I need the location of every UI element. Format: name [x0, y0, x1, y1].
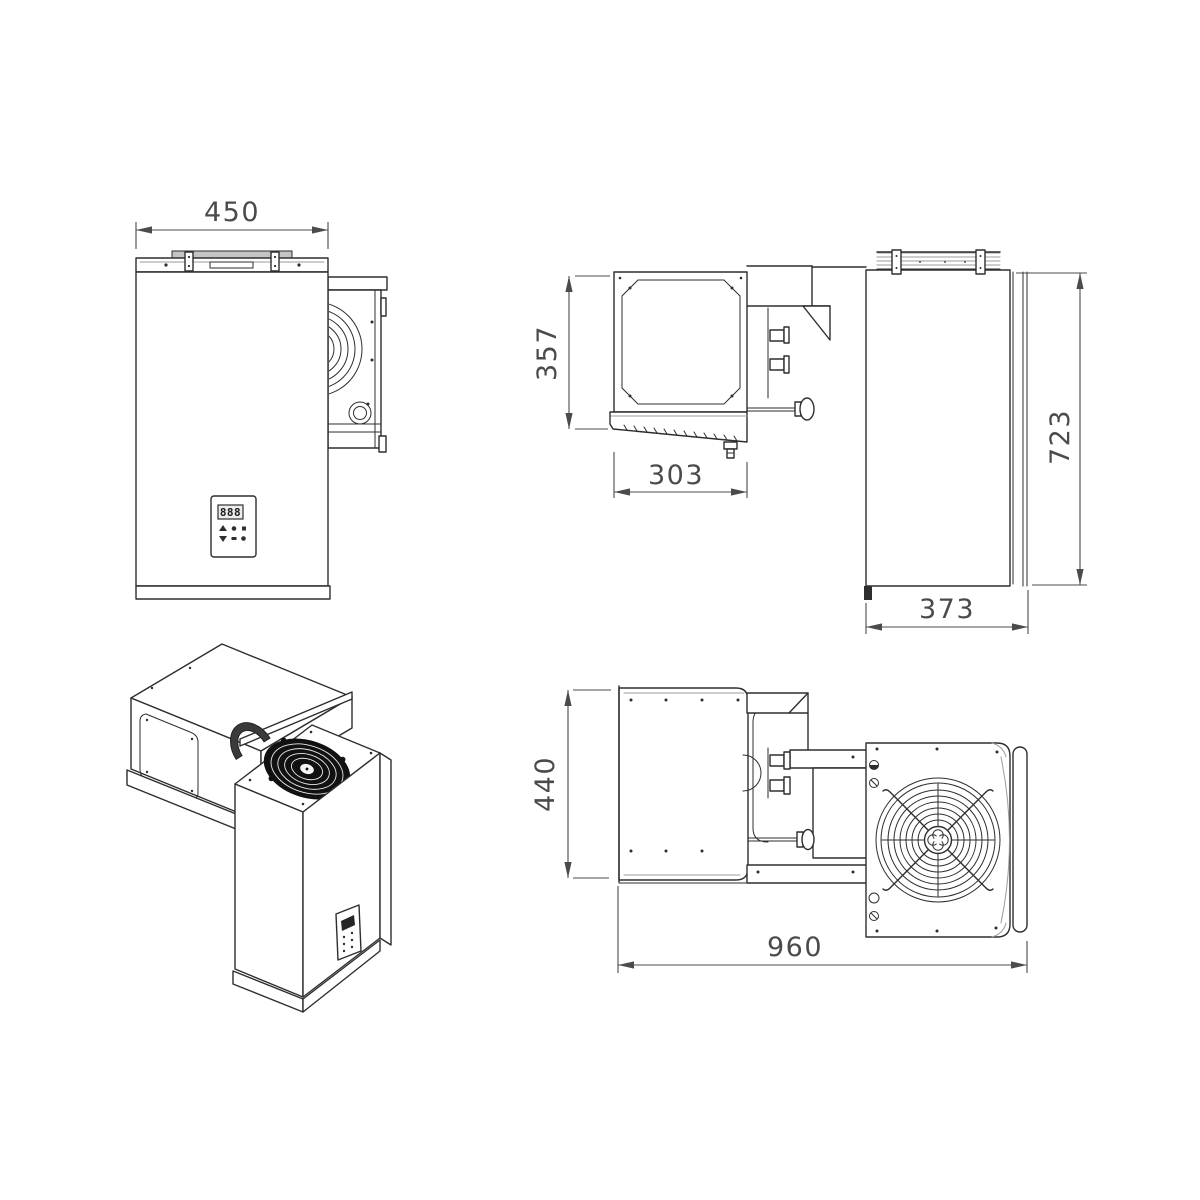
- dim-evaporator-depth: 303: [614, 452, 747, 498]
- screw-dot: [164, 263, 167, 266]
- condenser-side: [864, 250, 1027, 600]
- set-button: [232, 526, 237, 531]
- display-digits: 888: [220, 506, 241, 519]
- rail-clamp-left: [185, 252, 193, 271]
- dim-label-top-depth: 440: [530, 756, 561, 812]
- unit-foot: [864, 586, 872, 600]
- fan-hub-top: [925, 827, 952, 854]
- side-view: 357 303 723 373: [532, 250, 1087, 634]
- drawing-sheet: 450: [0, 0, 1200, 1200]
- screw-dot: [297, 263, 300, 266]
- condenser-rear-block: [813, 768, 867, 858]
- wall-bracket-side: [747, 266, 866, 340]
- control-panel-iso: [336, 905, 361, 960]
- dim-label-evap-depth: 303: [648, 460, 704, 491]
- valve-rod-side: [747, 398, 814, 420]
- cabinet-bottom-band: [136, 586, 330, 599]
- rail-clamp-right: [271, 252, 279, 271]
- power-button: [241, 536, 246, 541]
- dim-label-overall-length: 960: [767, 932, 823, 963]
- grille-clamp: [892, 250, 901, 274]
- isometric-view: [127, 644, 391, 1012]
- dim-label-evap-height: 357: [532, 325, 563, 381]
- dim-front-width: 450: [136, 197, 328, 249]
- dim-top-depth: 440: [530, 690, 611, 878]
- control-panel: 888: [211, 496, 256, 557]
- dim-label-front-width: 450: [204, 197, 260, 228]
- top-view: 440 960: [530, 686, 1027, 973]
- grille-clamp: [976, 250, 985, 274]
- evaporator-top: [619, 686, 768, 882]
- valve-knob-top: [802, 830, 814, 850]
- pipe-connections-top: [768, 748, 790, 798]
- valve-knob: [800, 398, 814, 420]
- condenser-iso: [233, 725, 391, 1012]
- mounting-rail-front: [136, 251, 328, 272]
- fan-guard: [876, 778, 1000, 902]
- evaporator-side: [610, 272, 814, 458]
- dim-evaporator-height: 357: [532, 276, 610, 429]
- pipe-connections-side: [768, 308, 789, 398]
- condenser-side-edge: [380, 753, 391, 945]
- condenser-front-left-face: [235, 784, 303, 997]
- condenser-top: [866, 743, 1027, 937]
- wall-bracket-plate: [328, 277, 387, 290]
- front-view: 450: [136, 197, 387, 599]
- mode-button: [232, 537, 237, 540]
- dim-label-overall-height: 723: [1045, 409, 1076, 465]
- mounting-hook: [803, 306, 830, 340]
- aux-button: [242, 527, 246, 531]
- dim-label-condenser-depth: 373: [919, 594, 975, 625]
- technical-drawing-canvas: 450: [0, 0, 1200, 1200]
- side-cover-panel: [1013, 747, 1027, 932]
- drain-fitting: [724, 442, 737, 449]
- dim-condenser-depth: 373: [866, 590, 1028, 634]
- drip-tray: [610, 412, 747, 458]
